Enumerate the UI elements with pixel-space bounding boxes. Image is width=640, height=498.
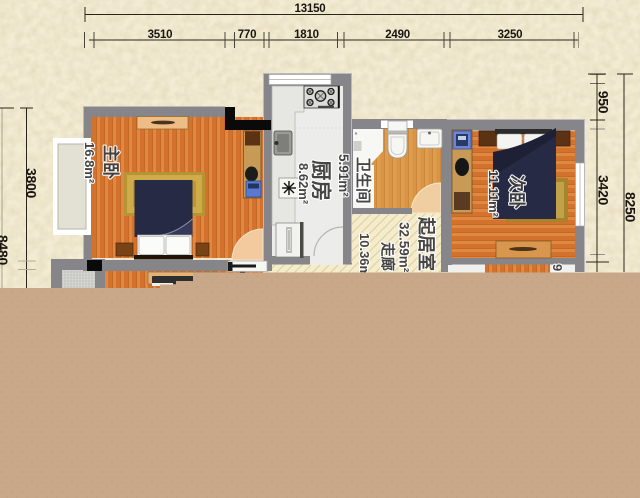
svg-text:8480: 8480 xyxy=(0,235,11,265)
svg-text:3420: 3420 xyxy=(596,175,612,205)
svg-text:9: 9 xyxy=(550,264,565,271)
svg-text:3510: 3510 xyxy=(148,29,173,41)
svg-text:8250: 8250 xyxy=(623,192,639,222)
svg-text:起居室: 起居室 xyxy=(416,216,437,271)
svg-text:次卧: 次卧 xyxy=(507,175,527,209)
svg-text:13150: 13150 xyxy=(295,3,326,15)
svg-text:5.91m²: 5.91m² xyxy=(336,154,351,197)
svg-text:8.62m²: 8.62m² xyxy=(296,163,311,205)
svg-text:走廊: 走廊 xyxy=(379,242,397,271)
svg-text:2490: 2490 xyxy=(385,29,410,41)
svg-text:770: 770 xyxy=(238,29,257,41)
svg-text:3250: 3250 xyxy=(498,29,523,41)
svg-text:卫生间: 卫生间 xyxy=(354,157,373,204)
svg-text:1810: 1810 xyxy=(294,29,319,41)
svg-text:32.59m²: 32.59m² xyxy=(397,222,412,273)
svg-text:16.8m²: 16.8m² xyxy=(82,142,97,184)
svg-text:3800: 3800 xyxy=(24,168,40,198)
svg-text:主卧: 主卧 xyxy=(101,145,121,179)
svg-text:11.11m²: 11.11m² xyxy=(486,170,501,218)
svg-text:950: 950 xyxy=(596,91,612,114)
svg-text:厨房: 厨房 xyxy=(309,160,333,201)
